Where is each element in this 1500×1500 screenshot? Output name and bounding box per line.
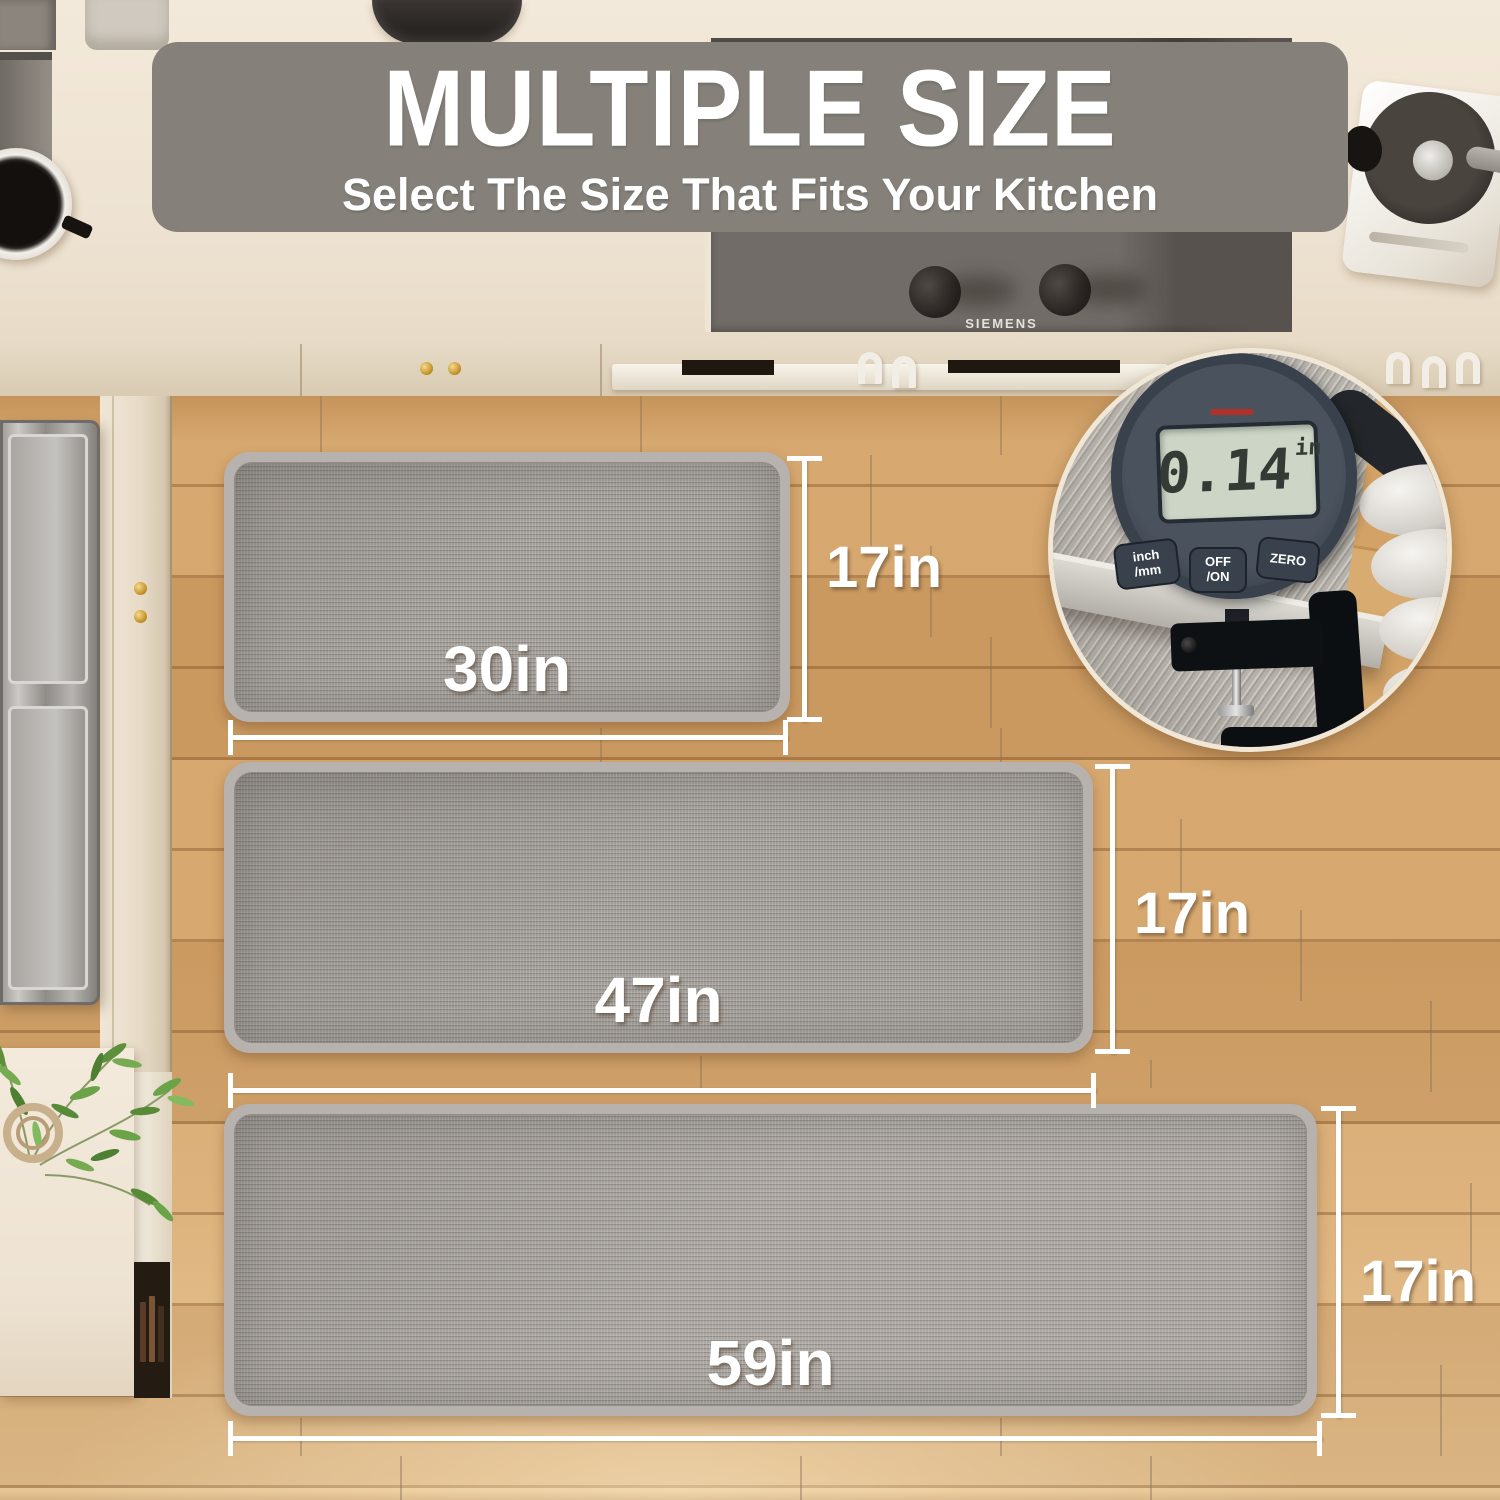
cabinet-seam: [300, 344, 302, 396]
saucepan: [372, 0, 522, 44]
cabinet-knob: [134, 582, 147, 595]
plant: [0, 1015, 215, 1265]
stove-brand: SIEMENS: [711, 316, 1292, 331]
gauge-button-inch-mm: inch /mm: [1112, 537, 1181, 590]
title-banner: MULTIPLE SIZE Select The Size That Fits …: [152, 42, 1348, 232]
electric-kettle: [1341, 79, 1500, 288]
gauge-anvil: [1218, 705, 1254, 716]
floor-seam: [640, 396, 642, 455]
dimension-label-height-mat2: 17in: [1134, 880, 1250, 947]
kitchen-mat-59in: 59in: [224, 1104, 1317, 1416]
appliance-panel: [8, 434, 88, 684]
banner-subtitle: Select The Size That Fits Your Kitchen: [152, 169, 1348, 221]
island-shelf: [134, 1262, 170, 1398]
cabinet-knob: [134, 610, 147, 623]
cabinet-knob: [420, 362, 433, 375]
floor-seam: [1000, 396, 1002, 455]
floor-seam: [700, 1056, 702, 1088]
floor-seam: [600, 728, 602, 762]
appliance-panel: [8, 706, 88, 990]
stove-knob: [909, 266, 961, 318]
gauge-button-zero: ZERO: [1255, 536, 1321, 584]
dimension-hline-mat2: [228, 1088, 1096, 1093]
floor-seam: [1430, 1001, 1432, 1092]
gauge-reading: 0.14in: [1156, 441, 1320, 503]
product-infographic: SIEMENS: [0, 0, 1500, 1500]
gauge-brand-mark: [1210, 409, 1253, 415]
kitchen-mat-47in: 47in: [224, 762, 1093, 1053]
mat-size-label: 59in: [706, 1326, 834, 1400]
shelf-item: [158, 1306, 164, 1362]
floor-seam: [320, 396, 322, 455]
mat-size-label: 47in: [594, 963, 722, 1037]
dimension-vline-mat2: [1110, 764, 1115, 1054]
rail-hook: [1456, 352, 1480, 384]
dimension-vline-mat1: [802, 456, 807, 722]
rail-hook: [1386, 352, 1410, 384]
vent-slot: [682, 360, 774, 375]
floor-seam: [990, 637, 992, 728]
dimension-vline-mat3: [1336, 1106, 1341, 1418]
mat-size-label: 30in: [443, 632, 571, 706]
floor-seam: [870, 455, 872, 546]
dimension-hline-mat3: [228, 1436, 1322, 1441]
cabinet-knob: [448, 362, 461, 375]
floor-seam: [1000, 728, 1002, 762]
steel-appliance: [0, 420, 100, 1005]
moka-pot: [0, 148, 72, 260]
cabinet-column: [100, 396, 172, 1076]
rail-hook: [892, 356, 916, 388]
cabinet-seam: [600, 344, 602, 396]
floor-seam: [1440, 1365, 1442, 1456]
appliance-top: [0, 0, 56, 50]
floor-seam: [1150, 1060, 1152, 1088]
gauge-button-off-on: OFF /ON: [1189, 547, 1247, 593]
floor-seam: [1300, 910, 1302, 1001]
rail-hook: [1422, 356, 1446, 388]
dimension-label-height-mat1: 17in: [826, 534, 942, 601]
shelf-item: [149, 1296, 155, 1362]
shelf-item: [140, 1302, 146, 1362]
moka-pot-handle: [60, 215, 93, 240]
banner-title: MULTIPLE SIZE: [152, 46, 1348, 171]
thickness-inset: 0.14in inch /mm OFF /ON ZERO: [1048, 348, 1452, 752]
gauge-lcd: 0.14in: [1155, 420, 1320, 524]
stove-knob: [1039, 264, 1091, 316]
gauge-unit: in: [1295, 435, 1323, 461]
dimension-label-height-mat3: 17in: [1360, 1248, 1476, 1315]
kitchen-mat-30in: 30in: [224, 452, 790, 722]
small-appliance: [85, 0, 169, 50]
bottom-shade: [0, 1490, 1500, 1500]
gauge-screw: [1181, 637, 1197, 653]
dimension-hline-mat1: [228, 735, 788, 740]
rail-hook: [858, 352, 882, 384]
